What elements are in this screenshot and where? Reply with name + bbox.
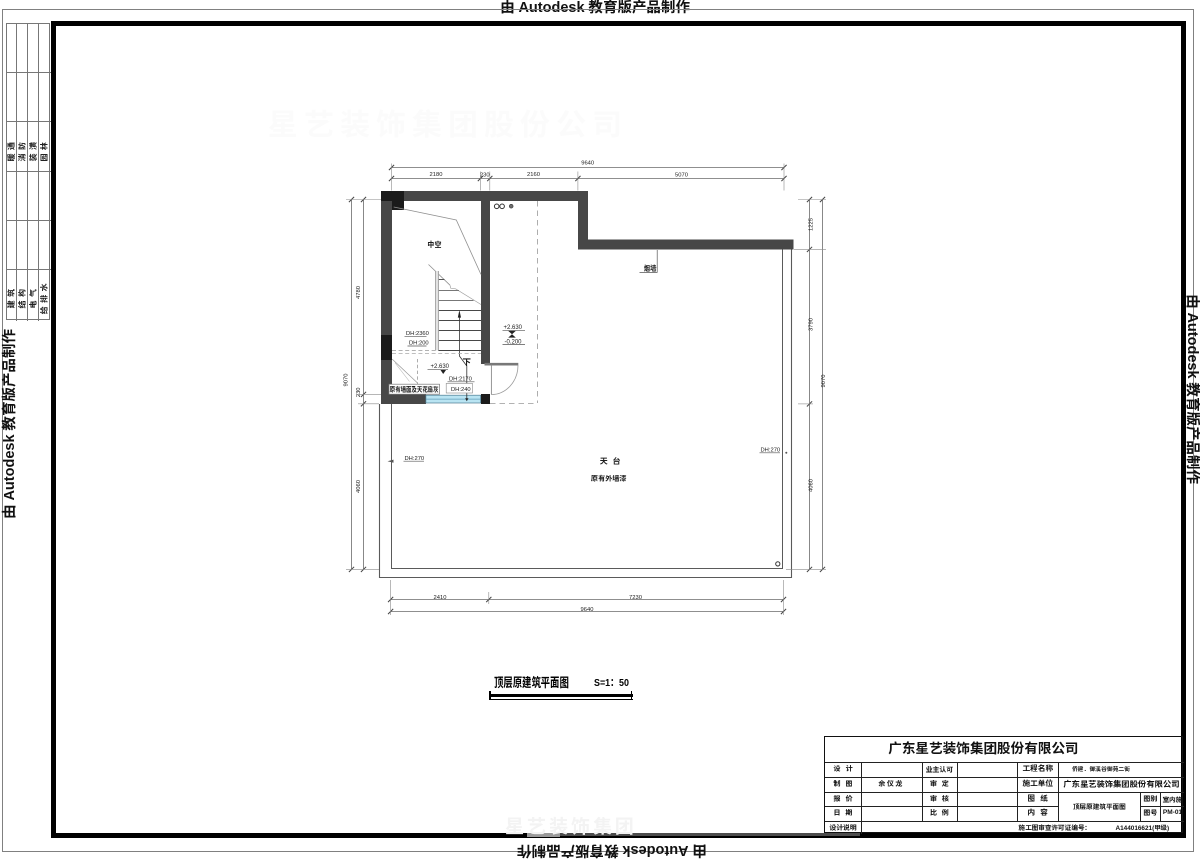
svg-text:9640: 9640 <box>581 160 594 166</box>
svg-text:原有墙面及天花扇灰: 原有墙面及天花扇灰 <box>390 385 439 395</box>
svg-text:230: 230 <box>356 387 362 397</box>
svg-text:2180: 2180 <box>430 172 443 178</box>
svg-text:7230: 7230 <box>629 595 642 601</box>
svg-text:4780: 4780 <box>356 286 362 299</box>
svg-text:4060: 4060 <box>356 480 362 493</box>
svg-text:5070: 5070 <box>675 173 688 179</box>
svg-text:4060: 4060 <box>809 479 815 492</box>
svg-text:9070: 9070 <box>821 375 827 388</box>
svg-text:2160: 2160 <box>527 172 540 178</box>
svg-text:1225: 1225 <box>809 218 815 231</box>
svg-text:9070: 9070 <box>344 374 350 387</box>
svg-text:2410: 2410 <box>434 595 447 601</box>
svg-text:原有外墙漆: 原有外墙漆 <box>591 474 627 484</box>
svg-text:9640: 9640 <box>581 607 594 613</box>
svg-text:DH:240: DH:240 <box>451 387 471 393</box>
svg-text:天台: 天台 <box>600 456 621 467</box>
svg-text:DH:200: DH:200 <box>409 341 429 347</box>
svg-text:+2.630: +2.630 <box>504 325 523 331</box>
svg-text:230: 230 <box>480 173 490 179</box>
svg-text:下: 下 <box>463 356 472 368</box>
svg-text:中空: 中空 <box>428 240 442 251</box>
svg-text:3790: 3790 <box>809 318 815 331</box>
